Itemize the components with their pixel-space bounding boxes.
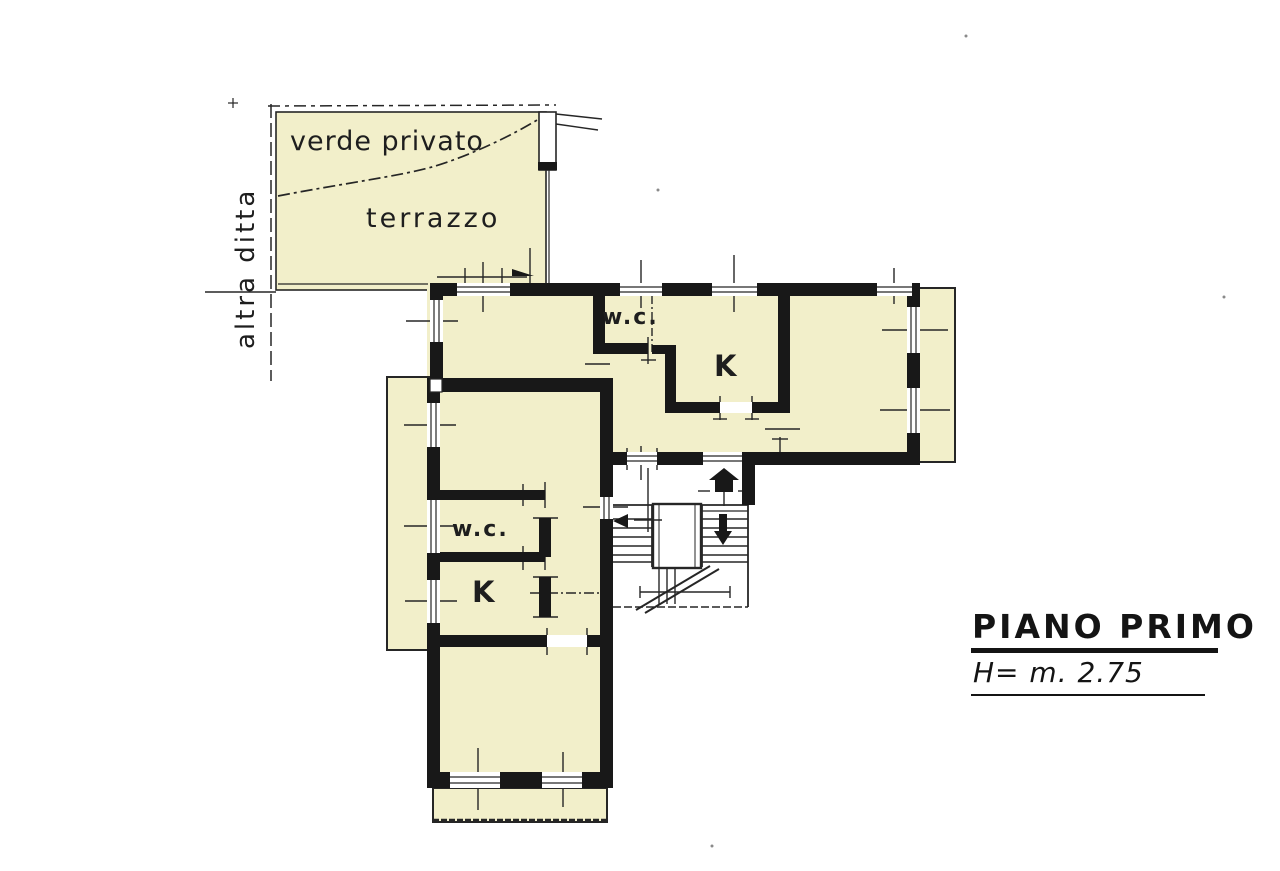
entrance-arrow-icon [709, 468, 739, 492]
window [457, 283, 510, 296]
window [542, 772, 582, 788]
door [703, 452, 742, 465]
window [620, 283, 662, 296]
wall-int-h1 [433, 490, 545, 500]
window [907, 307, 920, 353]
wall-right-lower [600, 392, 613, 775]
wall-wc-bottom [593, 343, 648, 354]
wall-stair-right [742, 465, 755, 505]
height-underline [971, 694, 1205, 696]
stair-treads-left [613, 519, 652, 562]
roof-line-1 [556, 114, 602, 119]
wall-divider-notch [430, 379, 442, 392]
wall-int-v1 [539, 518, 551, 557]
door [600, 497, 613, 519]
floor-title: PIANO PRIMO [972, 607, 1257, 646]
terrace-pillar [539, 112, 556, 170]
floor-height-note: H= m. 2.75 [973, 656, 1144, 689]
window [430, 300, 443, 342]
terrace-pillar-cap [538, 162, 557, 170]
label-wc-top: w.c. [602, 305, 659, 330]
balcony-bottom [433, 788, 607, 822]
balcony-left [387, 377, 430, 650]
label-wc-bottom: w.c. [452, 517, 509, 542]
stair-diagonal [636, 566, 710, 610]
window [907, 388, 920, 433]
window [712, 283, 757, 296]
label-verde-privato: verde privato [290, 126, 484, 157]
label-terrazzo: terrazzo [366, 203, 500, 234]
label-altra-ditta: altra ditta [231, 188, 261, 349]
roof-line-2 [556, 124, 598, 130]
wall-k-left [665, 345, 676, 410]
window [427, 403, 440, 447]
label-kitchen-bottom: K [472, 575, 494, 609]
lower-flight [659, 568, 675, 604]
stair-down-arrow-shaft [719, 514, 727, 532]
wall-divider [427, 378, 613, 392]
stair-down-arrow-icon [714, 531, 732, 545]
door [627, 452, 657, 465]
stair-core [653, 504, 701, 568]
window [877, 283, 912, 296]
window [427, 500, 440, 553]
door-gap [547, 635, 587, 647]
wall-int-v2 [539, 577, 551, 617]
label-kitchen-top: K [714, 349, 736, 383]
wall-bottom-arm [613, 452, 920, 465]
site-boundary-top [268, 105, 556, 106]
title-underline [971, 648, 1218, 653]
door-gap [720, 402, 752, 413]
stair-start-arrow-icon [613, 514, 628, 528]
window [427, 580, 440, 623]
wall-k-right [778, 292, 790, 413]
floorplan-canvas: altra ditta verde privato terrazzo w.c. … [0, 0, 1280, 871]
window [450, 772, 500, 788]
floorplan-drawing [0, 0, 1280, 871]
wall-int-h2 [433, 552, 545, 562]
balcony-right [918, 288, 955, 462]
